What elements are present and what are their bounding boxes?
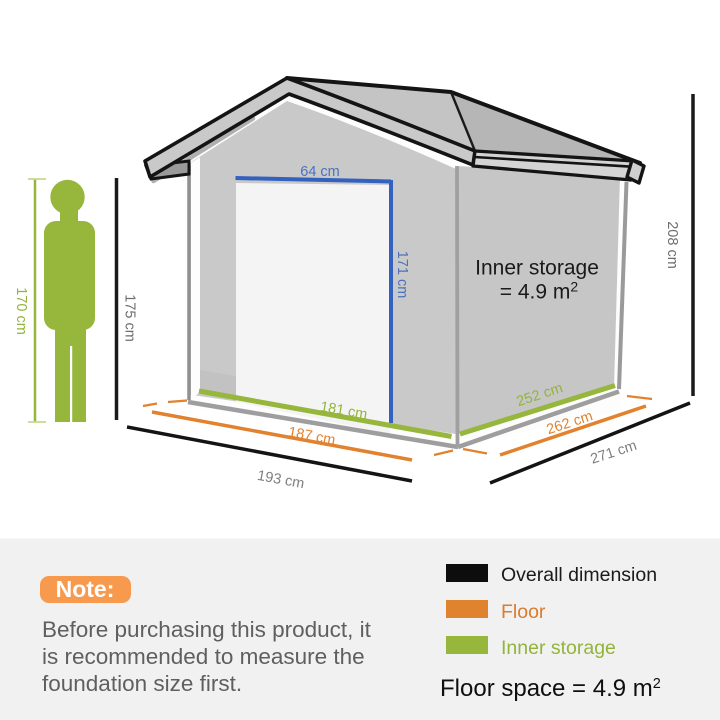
svg-text:171 cm: 171 cm (394, 251, 410, 299)
svg-text:Inner storage: Inner storage (501, 637, 616, 659)
svg-text:170 cm: 170 cm (13, 287, 29, 335)
svg-text:Overall dimension: Overall dimension (501, 564, 657, 586)
svg-text:64 cm: 64 cm (300, 164, 340, 180)
svg-text:Inner storage: Inner storage (475, 257, 599, 280)
svg-text:is recommended to measure the: is recommended to measure the (42, 644, 365, 669)
svg-text:Floor: Floor (501, 601, 546, 623)
svg-text:208 cm: 208 cm (664, 221, 680, 269)
svg-text:= 4.9 m2: = 4.9 m2 (500, 279, 579, 304)
svg-text:Before purchasing this product: Before purchasing this product, it (42, 617, 372, 642)
svg-text:Floor space = 4.9 m2: Floor space = 4.9 m2 (440, 675, 661, 702)
svg-text:175 cm: 175 cm (122, 294, 138, 342)
svg-text:foundation size first.: foundation size first. (42, 671, 242, 696)
svg-text:Note:: Note: (56, 576, 115, 602)
